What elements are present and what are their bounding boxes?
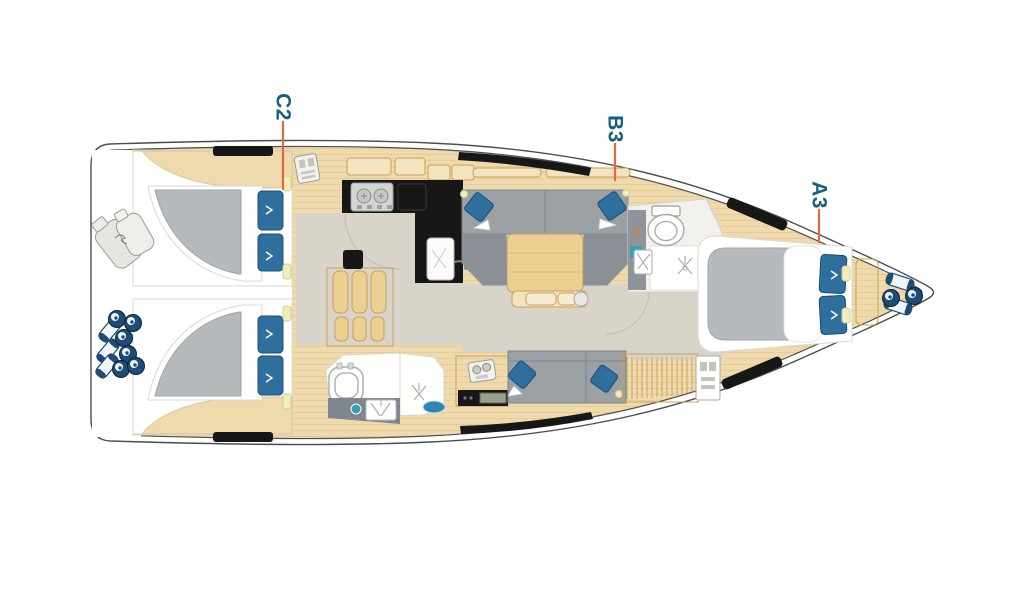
instrument-display	[480, 393, 506, 403]
sconce-light	[616, 391, 623, 398]
reading-light	[283, 394, 291, 409]
aft-starboard-cabin	[133, 299, 292, 435]
reading-light	[283, 306, 291, 321]
shower-mat	[423, 401, 445, 413]
bed-mattress	[708, 248, 788, 340]
hull-window	[213, 432, 273, 442]
reading-light	[842, 308, 850, 323]
toilet-icon	[329, 363, 363, 403]
settee	[507, 351, 626, 403]
sconce-light	[623, 190, 630, 197]
aft-port-cabin	[133, 150, 292, 286]
washbasin-icon	[634, 250, 652, 274]
cabin-label-b3-text: B3	[604, 115, 627, 143]
hull-window	[213, 146, 273, 156]
toilet-icon	[648, 206, 684, 246]
cabin-label-a3-text: A3	[808, 181, 831, 209]
aft-head	[326, 353, 445, 424]
cabin-label-c2-text: C2	[272, 93, 295, 121]
salon-bench	[512, 291, 588, 307]
companionway-steps	[327, 268, 393, 346]
instrument-icon	[468, 359, 497, 382]
sconce-light	[461, 191, 468, 198]
deck-plan-canvas: C2 B3 A3	[0, 0, 1024, 600]
appliance-icon	[294, 153, 320, 183]
reading-light	[283, 176, 291, 191]
pillow	[258, 356, 283, 395]
yacht-deck-plan: C2 B3 A3	[0, 0, 1024, 600]
reading-light	[842, 266, 850, 281]
bin-icon	[351, 404, 361, 414]
bed-sheet	[784, 246, 822, 342]
forward-cabin	[698, 236, 878, 352]
stove-icon	[351, 183, 393, 211]
reading-light	[283, 264, 291, 279]
salon-table	[507, 234, 583, 292]
locker-cabinet-icon	[696, 356, 720, 400]
washbasin-icon	[366, 400, 396, 420]
mast-post	[343, 250, 363, 269]
pillow	[258, 234, 283, 271]
